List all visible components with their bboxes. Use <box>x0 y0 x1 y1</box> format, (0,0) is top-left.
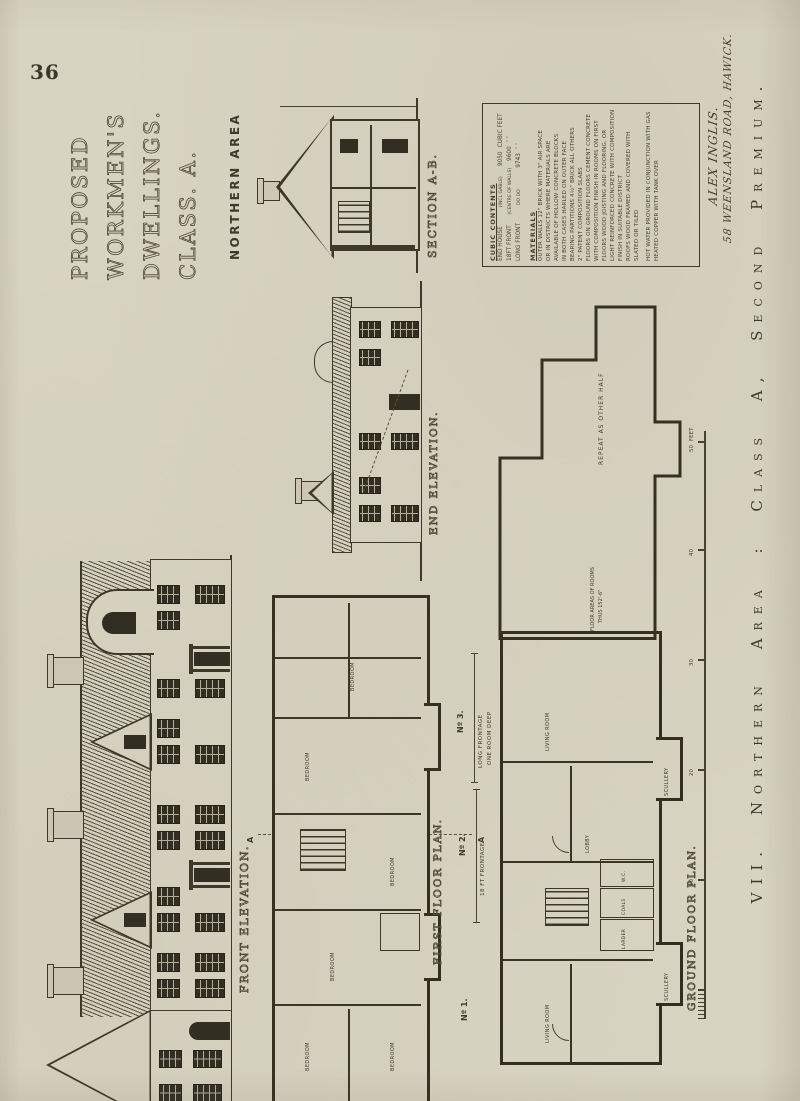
front-elevation-wall <box>150 559 232 1011</box>
dimension-line <box>476 789 477 923</box>
section-roof-face <box>280 118 332 256</box>
entrance-door <box>194 868 230 882</box>
floor-areas-note: FLOOR AREAS OF ROOMS <box>590 567 596 631</box>
partition-wall <box>275 1004 421 1006</box>
dimension-tick <box>473 789 480 790</box>
materials-line: WITH COMPOSITION FINISH IN ROOMS ON FIRS… <box>593 109 601 261</box>
coals-compartment <box>600 888 654 918</box>
window <box>195 913 225 932</box>
room-label: BEDROOM <box>350 662 356 691</box>
cubic-row: LONG FRONT DO DO 9743 ″ ″ <box>515 109 524 261</box>
arched-dormer <box>86 589 154 655</box>
ground-floor-plan <box>500 631 662 1065</box>
section-partition <box>332 187 416 189</box>
cubic-contents-heading: CUBIC CONTENTS <box>489 109 497 261</box>
window <box>195 831 225 850</box>
portico-column <box>193 885 230 888</box>
room-label: BEDROOM <box>390 857 396 886</box>
window <box>195 679 225 698</box>
staircase <box>545 888 589 926</box>
window <box>157 585 180 604</box>
window <box>359 349 381 366</box>
dormer-window <box>102 612 136 634</box>
room-label: SCULLERY <box>664 768 670 796</box>
section-label: SECTION A-B. <box>426 153 439 258</box>
window <box>391 505 419 522</box>
chimney <box>52 967 84 995</box>
title-line-1: PROPOSED <box>62 100 98 280</box>
scanned-book-page: 36 PROPOSED WORKMEN'S DWELLINGS. CLASS. … <box>0 0 800 1101</box>
window <box>359 433 381 450</box>
scale-tick-label: 50 <box>689 445 695 452</box>
window <box>195 745 225 764</box>
staircase <box>300 829 346 871</box>
architect-signature-name: ALEX INGLIS. <box>706 105 720 206</box>
arched-dormer <box>314 341 333 383</box>
partition-wall <box>503 959 653 961</box>
portico-column <box>193 669 230 672</box>
cubic-item: LONG FRONT <box>515 205 524 261</box>
cubic-value: 9600 <box>506 146 515 168</box>
window <box>157 953 180 972</box>
scale-tick-label: 20 <box>689 769 695 776</box>
house-number-2: Nº 2. <box>458 833 467 856</box>
cubic-row: END HOUSE (INCL GABLE) 9050 CUBIC FEET <box>497 109 506 261</box>
materials-line: SLATED OR TILED <box>633 109 641 261</box>
chimney <box>52 811 84 839</box>
frontage-dimension-18ft: 18 FT FRONTAGE <box>480 842 486 896</box>
plan-rear-projection <box>424 703 441 771</box>
ground-floor-plan-label: GROUND FLOOR PLAN. <box>686 844 698 1011</box>
materials-line: FLOORS ON GROUND FLOORS CEMENT CONCRETE <box>585 109 593 261</box>
larder-compartment <box>600 919 654 951</box>
section-window <box>340 139 358 153</box>
scale-bar-subdivisions <box>698 991 705 1019</box>
section-window <box>382 139 408 153</box>
hot-water-note: HOT WATER PROVIDED IN CONJUNCTION WITH G… <box>645 109 653 261</box>
window <box>195 979 225 998</box>
room-label: LARDER <box>622 929 627 949</box>
section-marker-a-top: A <box>246 837 255 843</box>
partition-wall <box>348 603 350 719</box>
title-line-2: WORKMEN'S <box>98 100 134 280</box>
cubic-row: 18FT FRONT (CENTRE OF WALLS) 9600 ″ ″ <box>506 109 515 261</box>
partition-wall <box>570 766 572 861</box>
section-dimension-line <box>280 106 416 107</box>
room-label: W.C. <box>622 871 627 882</box>
room-label: SCULLERY <box>664 973 670 1001</box>
specification-box: CUBIC CONTENTS END HOUSE (INCL GABLE) 90… <box>482 103 700 267</box>
materials-heading: MATERIALS <box>529 109 537 261</box>
materials-line: ROOFS WOOD FRAMED AND COVERED WITH <box>625 109 633 261</box>
architect-signature-address: 58 WEENSLAND ROAD, HAWICK. <box>722 32 734 244</box>
section-wall-poche <box>331 245 415 250</box>
title-line-4: CLASS. A. <box>170 100 206 280</box>
end-gable-roof <box>46 1009 152 1101</box>
entrance-door <box>189 1022 230 1040</box>
scale-tick <box>698 442 705 444</box>
room-label: LOBBY <box>585 835 591 853</box>
dimension-tick <box>471 653 478 654</box>
frontage-dimension-long: LONG FRONTAGE <box>478 714 484 768</box>
window <box>195 585 225 604</box>
materials-line: FINISH IN SUITABLE DISTRICT <box>617 109 625 261</box>
window <box>159 1084 182 1101</box>
cubic-detail: DO DO <box>515 179 524 205</box>
room-label: BEDROOM <box>330 952 336 981</box>
scale-tick <box>698 880 705 882</box>
title-line-3: DWELLINGS. <box>134 100 170 280</box>
scale-tick-label: 30 <box>689 659 695 666</box>
roof-gablet-face <box>312 474 332 512</box>
scale-tick-label: 40 <box>689 549 695 556</box>
window <box>359 505 381 522</box>
window <box>157 831 180 850</box>
window <box>193 1050 222 1068</box>
cubic-value: 9050 <box>497 151 506 176</box>
window <box>391 321 419 338</box>
dimension-tick <box>473 922 480 923</box>
scale-tick <box>698 770 705 772</box>
materials-line: BEARING PARTITIONS 4½" BRICK ALL OTHERS <box>569 109 577 261</box>
materials-line: AVAILABLE OF HOLLOW CONCRETE BLOCKS <box>553 109 561 261</box>
chimney <box>52 657 84 685</box>
end-elevation-wall <box>350 307 422 543</box>
dimension-line <box>474 653 475 783</box>
front-elevation-label: FRONT ELEVATION. <box>238 845 251 993</box>
partition-wall <box>570 964 572 1062</box>
window <box>359 321 381 338</box>
cubic-item: 18FT FRONT <box>506 215 515 262</box>
room-label: BEDROOM <box>305 1042 311 1071</box>
room-label: LIVING ROOM <box>545 713 551 751</box>
cubic-detail: (INCL GABLE) <box>497 176 506 207</box>
roof-gablet <box>308 471 334 515</box>
scale-tick <box>698 550 705 552</box>
closet <box>380 913 420 951</box>
scale-unit-label: FEET <box>689 428 695 441</box>
window <box>157 887 180 906</box>
hot-water-note: HEATED COPPER WITH TANK OVER <box>653 109 661 261</box>
portico-column <box>193 862 230 865</box>
frontage-dimension-depth: ONE ROOM DEEP <box>487 711 493 765</box>
end-elevation-label: END ELEVATION. <box>428 411 440 535</box>
house-number-1: Nº 1. <box>460 998 469 1021</box>
cubic-item: END HOUSE <box>497 207 506 261</box>
roof-slope-dashed-line <box>363 370 408 493</box>
end-elevation-roof <box>332 297 352 553</box>
window <box>195 805 225 824</box>
window <box>157 979 180 998</box>
materials-line: FLOORS WOOD JOISTING AND FLOORING, OR <box>601 109 609 261</box>
gablet-window <box>124 735 146 749</box>
window <box>157 913 180 932</box>
window <box>157 805 180 824</box>
scale-tick <box>698 660 705 662</box>
partition-wall <box>275 909 421 911</box>
materials-line: OR IN DISTRICTS WHERE MATERIALS ARE <box>545 109 553 261</box>
title-subtitle: NORTHERN AREA <box>228 113 242 260</box>
room-label: COALS <box>622 898 627 915</box>
window <box>157 611 180 630</box>
wc-compartment <box>600 859 654 887</box>
chimney <box>262 181 280 201</box>
dimension-tick <box>471 782 478 783</box>
door-portico <box>189 644 230 674</box>
materials-line: 2" PATENT COMPOSITION SLABS <box>577 109 585 261</box>
scale-tick-label: 10 <box>689 879 695 886</box>
gablet-window <box>124 913 146 927</box>
section-staircase <box>338 201 370 233</box>
window <box>159 1050 182 1068</box>
window <box>157 719 180 738</box>
repeat-note: REPEAT AS OTHER HALF <box>598 372 605 465</box>
end-gable-wall <box>150 1009 232 1101</box>
room-label: BEDROOM <box>305 752 311 781</box>
cubic-unit: ″ ″ <box>506 109 515 142</box>
window <box>157 745 180 764</box>
first-floor-plan-label: FIRST FLOOR PLAN. <box>432 818 444 965</box>
scale-tick <box>698 990 705 992</box>
room-label: BEDROOM <box>390 1042 396 1071</box>
room-label: LIVING ROOM <box>545 1005 551 1043</box>
rotated-drawing-sheet: PROPOSED WORKMEN'S DWELLINGS. CLASS. A. … <box>0 0 800 1101</box>
window <box>157 679 180 698</box>
materials-line: IN BOTH CASES HARLED ON OUTER FACE <box>561 109 569 261</box>
end-gable-roof-face <box>50 1012 150 1101</box>
section-roof <box>276 115 334 259</box>
partition-wall <box>275 813 421 815</box>
house-number-3: Nº 3. <box>456 710 465 733</box>
portico-column <box>193 646 230 649</box>
cubic-unit: ″ ″ <box>515 109 524 149</box>
partition-wall <box>503 761 653 763</box>
materials-line: OUTER WALLS 12" BRICK WITH 3" AIR SPACE <box>537 109 545 261</box>
entrance-door <box>194 652 230 666</box>
cubic-unit: CUBIC FEET <box>497 109 506 147</box>
scale-bar-line <box>704 431 706 1019</box>
title-block: PROPOSED WORKMEN'S DWELLINGS. CLASS. A. <box>62 100 206 280</box>
cubic-detail: (CENTRE OF WALLS) <box>506 168 515 215</box>
partition-wall <box>348 1009 350 1101</box>
window <box>391 433 419 450</box>
door-portico <box>189 860 230 890</box>
plate-caption: VII. Northern Area : Class A, Second Pre… <box>748 21 766 961</box>
cubic-value: 9743 <box>515 153 524 179</box>
window <box>195 953 225 972</box>
floor-areas-value: THUS 152'-6" <box>598 590 604 623</box>
window <box>193 1084 222 1101</box>
materials-line: LIGHT REINFORCED CONCRETE WITH COMPOSITI… <box>609 109 617 261</box>
